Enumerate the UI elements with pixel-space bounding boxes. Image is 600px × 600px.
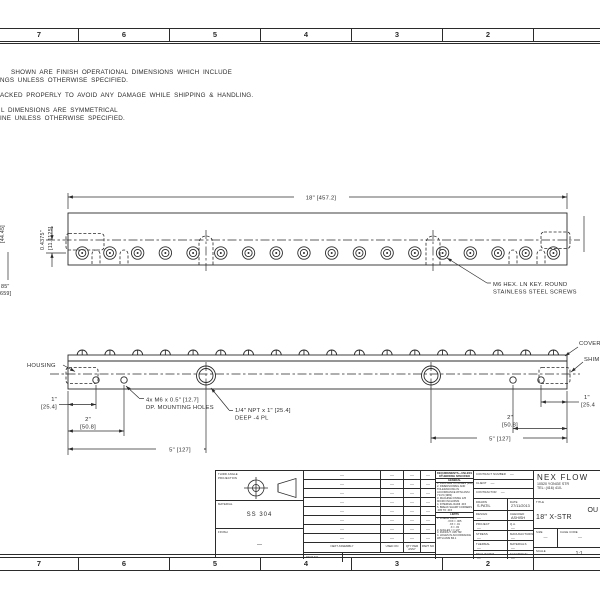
qa-value: — (508, 526, 533, 529)
assembly-cell: — (381, 471, 404, 480)
screw-center (275, 252, 277, 254)
drawn-value: S.PATIL (474, 504, 507, 508)
drawing-title-cell: TITLE OU 18" X-STR (534, 499, 600, 529)
electrical-value: — (508, 556, 533, 559)
leader-line (63, 365, 75, 372)
finish-value: — (216, 542, 303, 548)
checked-value: ASHISH (508, 516, 533, 520)
assembly-cell: — (421, 534, 435, 543)
assembly-cell: — (304, 507, 381, 516)
mounting-holes-callout-line1: 4x M6 x 0.5" [12.7] (146, 398, 199, 404)
part-no-label: PART NO (304, 553, 343, 562)
assembly-cell: — (421, 498, 435, 507)
size-cage-row: SIZE — CAGE CODE — (534, 529, 600, 548)
project-value: — (474, 526, 507, 529)
assembly-cell: — (421, 516, 435, 525)
scale-value: 1:1 (546, 548, 583, 559)
assembly-row: ———— (304, 471, 435, 480)
client-row: CLIENT — (474, 480, 533, 489)
housing-outline-top-view (68, 213, 567, 265)
screw-center (552, 252, 554, 254)
screw-center (248, 252, 250, 254)
design-value: — (474, 516, 507, 520)
npt-callout-line1: 1/4" NPT x 1" [25.4] (235, 408, 291, 414)
hidden-mounting-hole (120, 250, 128, 264)
thermal-value: — (474, 546, 507, 550)
mechanism-value: — (474, 556, 507, 559)
assembly-cell: — (404, 480, 421, 489)
contractor-row: CONTRACTOR — (474, 489, 533, 498)
assembly-cell: — (404, 489, 421, 498)
company-tel: TEL: (416) 410- (537, 486, 600, 490)
drawing-title-line1: OU (534, 504, 600, 514)
dim-5in: 5" [127] (169, 448, 191, 454)
leader-line (571, 362, 583, 372)
assembly-cell: — (304, 516, 381, 525)
contract-row: CONTRACT NUMBER — (474, 471, 533, 480)
screw-center (442, 252, 444, 254)
assembly-cell: — (404, 534, 421, 543)
assembly-table: ———————————————————————————————— NEXT AS… (304, 471, 436, 559)
size-cell: SIZE — (534, 529, 558, 547)
assembly-cell: — (404, 471, 421, 480)
screw-center (303, 252, 305, 254)
contract-label: CONTRACT NUMBER (474, 471, 506, 476)
assembly-cell: — (404, 498, 421, 507)
finish-label: FINISH (216, 529, 303, 534)
screw-center (386, 252, 388, 254)
screw-center (414, 252, 416, 254)
assembly-row: ———— (304, 507, 435, 516)
drawing-sheet: 7 6 5 4 3 2 7 6 5 4 3 2 SHOWN ARE FINISH… (0, 0, 600, 600)
client-label: CLIENT (474, 480, 487, 485)
thermal-materials-row: THERMAL — MATERIALS — (474, 541, 533, 551)
scale-label: SCALE (534, 548, 546, 559)
company-identity: NEX FLOW 10520 YONGE STR TEL: (416) 410- (534, 471, 600, 499)
company-block: NEX FLOW 10520 YONGE STR TEL: (416) 410-… (534, 471, 600, 559)
assembly-rows: ———————————————————————————————— (304, 471, 435, 543)
cage-code-value: — (558, 534, 600, 539)
screw-center (497, 252, 499, 254)
dim-overall-length: 18" [457.2] (306, 196, 337, 202)
material-value: SS 304 (216, 512, 303, 518)
hidden-mounting-hole (537, 250, 545, 264)
assembly-row: ———— (304, 525, 435, 534)
stress-mfg-row: STRESS — MANUFACTURING — (474, 531, 533, 541)
label-housing: HOUSING (27, 363, 56, 369)
assembly-row: ———— (304, 516, 435, 525)
assembly-row: ———— (304, 498, 435, 507)
mounting-hole (510, 377, 516, 383)
assembly-cell: — (304, 489, 381, 498)
assembly-header: USED ON (381, 543, 404, 553)
dim-clipped-b: 659] (0, 291, 12, 297)
assembly-cell: — (421, 471, 435, 480)
assembly-row: ———— (304, 489, 435, 498)
assembly-cell: — (381, 480, 404, 489)
front-view: HOUSING COVER SHIM 1" [25.4] 2" [50.8] (27, 341, 600, 455)
assembly-cell: — (421, 480, 435, 489)
assembly-cell: — (381, 489, 404, 498)
assembly-cell: — (404, 507, 421, 516)
requirements-title: REQUIREMENTS—UNLESS OTHERWISE SPECIFIED (436, 471, 473, 478)
assembly-cell: — (381, 525, 404, 534)
leader-line (126, 386, 139, 398)
assembly-row: ———— (304, 480, 435, 489)
screw-row-top-view (76, 247, 560, 259)
dim-5in-right: 5" [127] (489, 437, 511, 443)
screw-center (81, 252, 83, 254)
dim-2in-right-mm: [50.8] (502, 423, 518, 429)
contractor-value: — (498, 490, 505, 494)
screw-callout-line2: STAINLESS STEEL SCREWS (493, 290, 577, 296)
admin-grid: CONTRACT NUMBER — CLIENT — CONTRACTOR — … (474, 471, 534, 559)
top-view: 18" [457.2] 0.4375" [11.1125] [44.45] 85… (0, 192, 584, 297)
cage-code-cell: CAGE CODE — (558, 529, 600, 547)
assembly-header: NEXT ASSEMBLY (304, 543, 381, 553)
part-no-row: PART NO — (304, 553, 435, 562)
dim-2in: 2" (85, 417, 91, 423)
dim-1in: 1" (51, 397, 57, 403)
screw-center (331, 252, 333, 254)
screw-callout-line1: M6 HEX. LN KEY. ROUND (493, 282, 567, 288)
part-no-value: — (343, 553, 435, 562)
assembly-cell: — (381, 534, 404, 543)
dim-1in-mm: [25.4] (41, 405, 57, 411)
assembly-cell: — (304, 525, 381, 534)
screw-center (358, 252, 360, 254)
material-cell: MATERIAL SS 304 (216, 501, 304, 529)
assembly-cell: — (404, 525, 421, 534)
drawn-date-row: DRAWN S.PATIL DATE 27/11/2013 (474, 499, 533, 512)
assembly-cell: — (404, 516, 421, 525)
screw-center (137, 252, 139, 254)
assembly-cell: — (421, 489, 435, 498)
screw-center (469, 252, 471, 254)
screw-center (192, 252, 194, 254)
date-value: 27/11/2013 (508, 504, 533, 508)
drawing-title-line2: 18" X-STR (534, 514, 600, 521)
finish-cell: FINISH — (216, 529, 304, 559)
projection-cell: THIRD ANGLE PROJECTION (216, 471, 304, 501)
dim-offset-mm: [11.1125] (48, 226, 54, 250)
dim-1in-right-mm: [25.4 (581, 403, 596, 409)
screw-center (164, 252, 166, 254)
assembly-cell: — (381, 516, 404, 525)
manufacturing-label: MANUFACTURING (508, 531, 533, 536)
requirement-item: 4. HOLES IN ACCORDANCE WITH ANSI B4.1 (436, 535, 473, 541)
assembly-header: PART NO (421, 543, 435, 553)
mechanism-electrical-row: MECHANISM — ELECTRICAL — (474, 551, 533, 559)
assembly-cell: — (304, 480, 381, 489)
company-name: NEX FLOW (537, 471, 600, 482)
title-block: THIRD ANGLE PROJECTION MATERIAL SS 304 F… (215, 470, 600, 558)
scale-row: SCALE 1:1 (534, 548, 600, 559)
hidden-mounting-hole (509, 250, 517, 264)
stress-value: — (474, 536, 507, 540)
dim-clipped-mm: [44.45] (0, 225, 6, 243)
screw-heads-front-view (77, 350, 558, 355)
design-checked-row: DESIGN — CHECKED ASHISH (474, 511, 533, 521)
assembly-cell: — (381, 507, 404, 516)
label-cover: COVER (579, 341, 600, 347)
contract-value: — (507, 472, 514, 476)
size-value: — (534, 534, 557, 539)
dim-2in-mm: [50.8] (80, 425, 96, 431)
hidden-mounting-hole (92, 250, 100, 264)
label-shim: SHIM (584, 357, 600, 363)
third-angle-projection-symbol (216, 477, 302, 499)
material-label: MATERIAL (216, 501, 303, 506)
npt-callout-line2: DEEP -4 PL (235, 416, 269, 422)
assembly-cell: — (304, 534, 381, 543)
assembly-cell: — (304, 498, 381, 507)
screw-center (525, 252, 527, 254)
leader-line (565, 347, 578, 356)
leader-line (447, 258, 487, 283)
dim-1in-right: 1" (584, 395, 590, 401)
assembly-cell: — (421, 507, 435, 516)
manufacturing-value: — (508, 536, 533, 540)
assembly-cell: — (304, 471, 381, 480)
assembly-header: QTY PER ASSY (404, 543, 421, 553)
mounting-hole (121, 377, 127, 383)
screw-center (109, 252, 111, 254)
assembly-headers: NEXT ASSEMBLY USED ON QTY PER ASSY PART … (304, 543, 435, 553)
project-qa-row: PROJECT — Q.A. — (474, 521, 533, 530)
assembly-cell: — (381, 498, 404, 507)
contractor-label: CONTRACTOR (474, 489, 497, 494)
requirements-cell: REQUIREMENTS—UNLESS OTHERWISE SPECIFIED … (436, 471, 474, 559)
screw-center (220, 252, 222, 254)
assembly-row: ———— (304, 534, 435, 543)
dim-offset-inches: 0.4375" (40, 230, 46, 250)
dim-2in-right: 2" (507, 415, 513, 421)
assembly-cell: — (421, 525, 435, 534)
client-value: — (488, 481, 495, 485)
dim-clipped-a: 85" (1, 284, 10, 290)
mounting-holes-callout-line2: DP. MOUNTING HOLES (146, 405, 214, 411)
materials-value: — (508, 546, 533, 550)
housing-outline-front-view (68, 355, 567, 389)
